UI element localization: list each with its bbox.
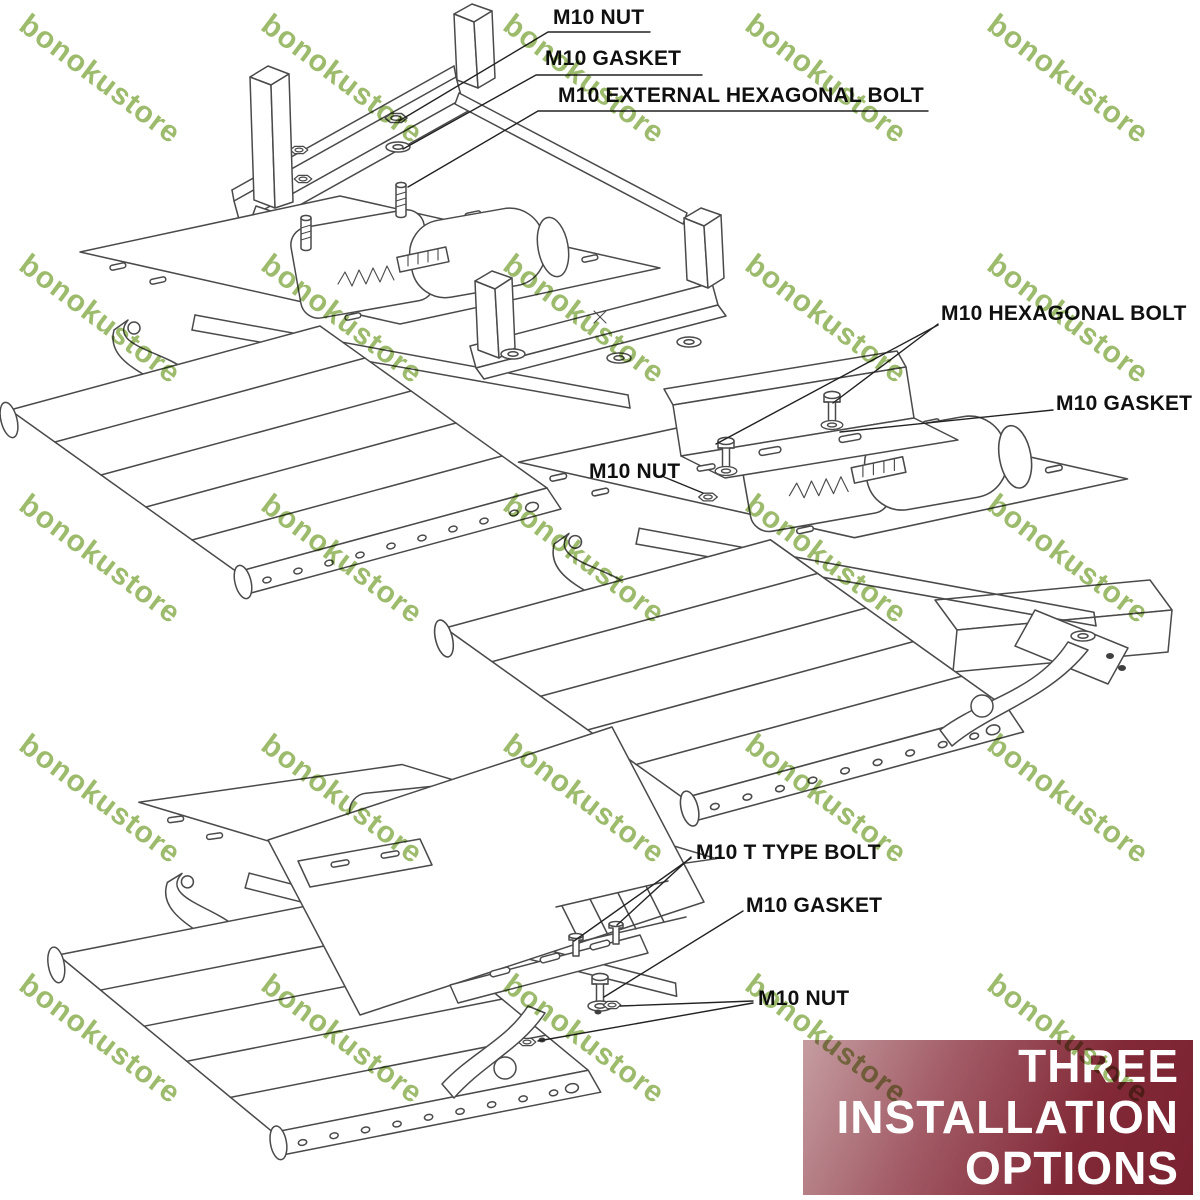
label-m10-nut-top: M10 NUT — [553, 6, 644, 30]
label-m10-gasket-top: M10 GASKET — [545, 47, 681, 71]
label-m10-gasket-bottom: M10 GASKET — [746, 894, 882, 918]
banner-line-1: THREE — [803, 1041, 1179, 1092]
label-m10-t-type-bolt: M10 T TYPE BOLT — [696, 841, 881, 865]
diagram-plate-mount — [32, 727, 722, 1190]
m10-nut-part-middle — [699, 493, 718, 501]
label-m10-nut-middle: M10 NUT — [589, 460, 680, 484]
m10-nut-part-bottom-a — [603, 1001, 621, 1008]
m10-external-hex-bolt-part — [396, 183, 406, 218]
banner-line-3: OPTIONS — [803, 1143, 1179, 1194]
diagram-canvas — [0, 0, 1200, 1200]
banner: THREE INSTALLATION OPTIONS — [803, 1040, 1193, 1195]
label-m10-hex-bolt: M10 HEXAGONAL BOLT — [941, 302, 1187, 326]
label-m10-nut-bottom: M10 NUT — [758, 987, 849, 1011]
label-m10-gasket-middle: M10 GASKET — [1056, 392, 1192, 416]
product-image: { "watermark": { "text": "bonokustore", … — [0, 0, 1200, 1200]
banner-line-2: INSTALLATION — [803, 1092, 1179, 1143]
label-m10-external-hex-bolt: M10 EXTERNAL HEXAGONAL BOLT — [558, 84, 924, 108]
